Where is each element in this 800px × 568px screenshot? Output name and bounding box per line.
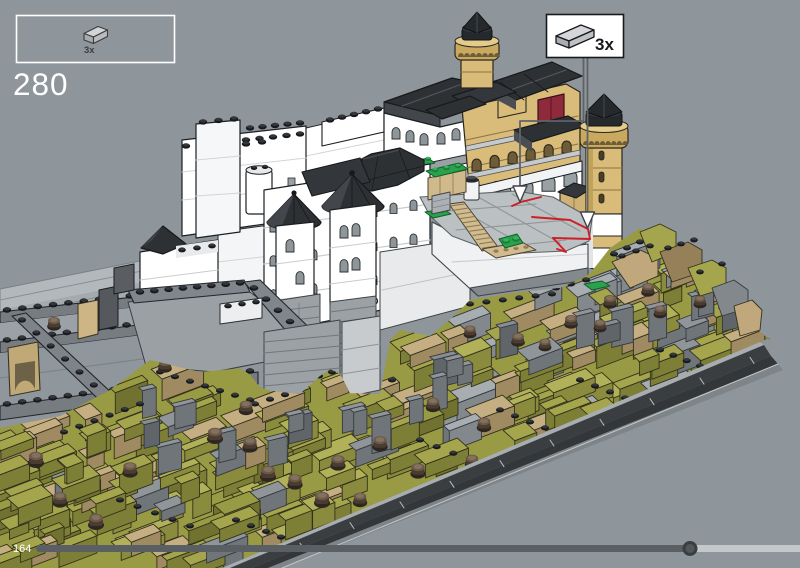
svg-text:280: 280 [13,66,69,102]
svg-text:3x: 3x [595,35,614,54]
svg-text:164: 164 [13,543,31,555]
svg-text:3x: 3x [84,45,95,56]
